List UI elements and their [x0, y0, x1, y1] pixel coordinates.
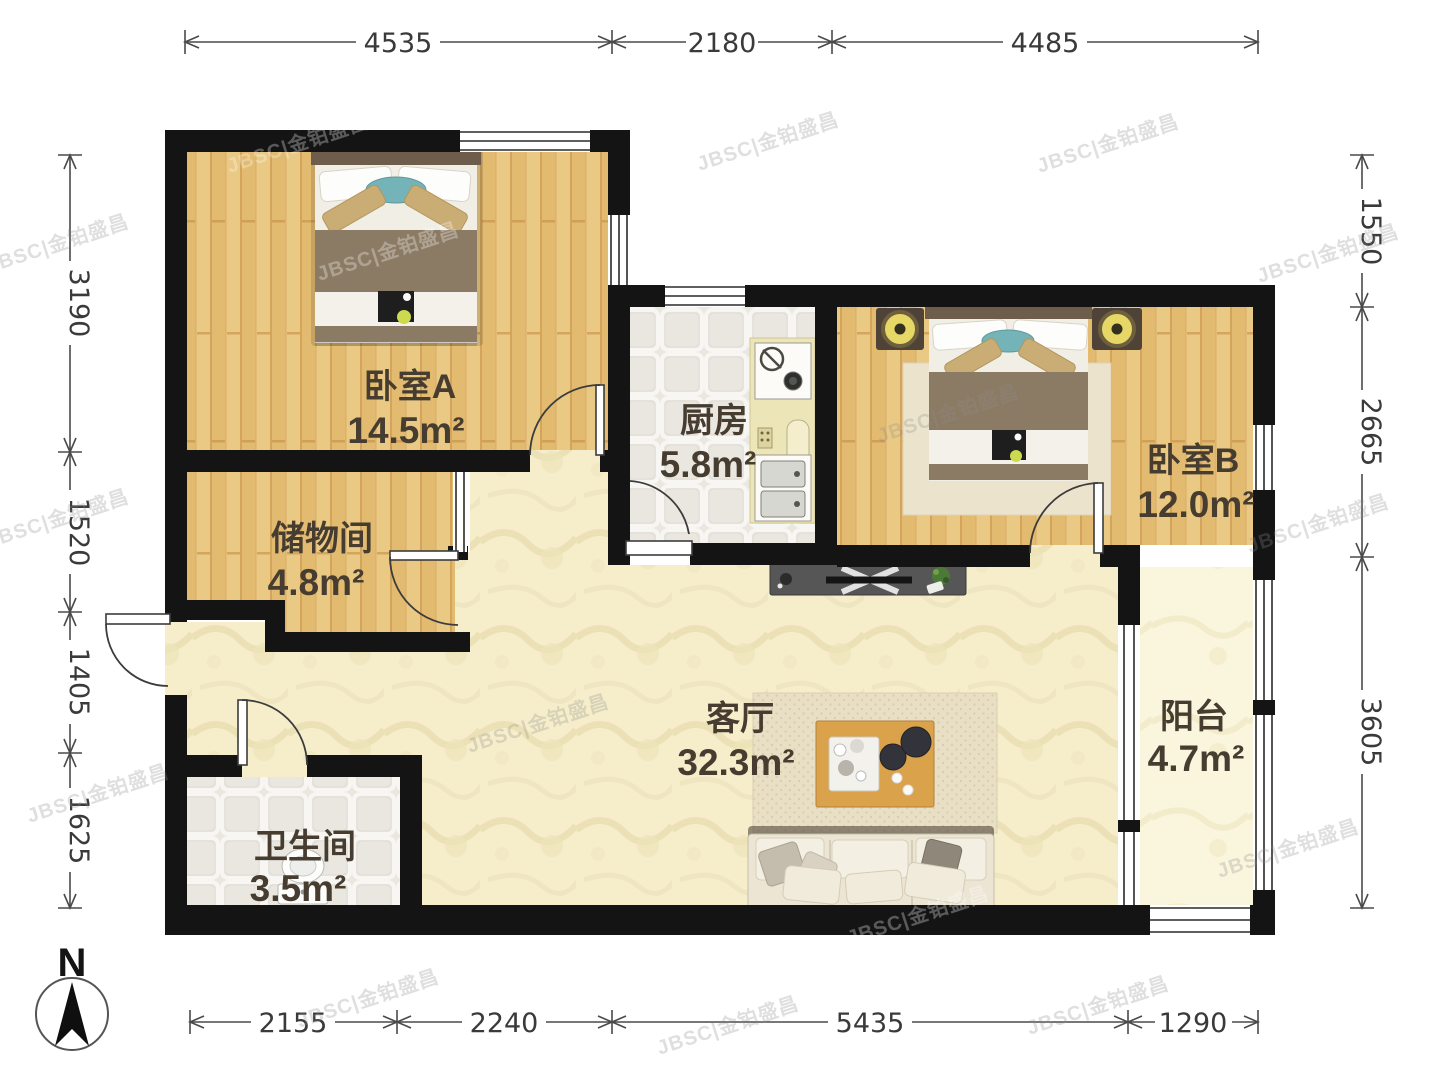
area-bedroom-b: 12.0m²	[1137, 484, 1254, 525]
floor-plan-svg: 4535 2180 4485 2155 2240 5435 1290	[0, 0, 1440, 1080]
label-kitchen: 厨房	[680, 402, 748, 440]
window-bedroom-a-right	[608, 215, 630, 285]
label-balcony: 阳台	[1160, 698, 1228, 736]
area-storage: 4.8m²	[268, 562, 365, 603]
window-bedroom-a-top	[460, 130, 590, 152]
dim-top-2: 2180	[688, 28, 757, 59]
kitchen-counter	[750, 338, 815, 523]
compass-north-arrow-icon	[55, 982, 89, 1046]
window-bedroom-b-right	[1253, 425, 1275, 490]
floor-plan-canvas: 4535 2180 4485 2155 2240 5435 1290	[0, 0, 1440, 1080]
compass: N	[36, 941, 108, 1050]
door-entry	[106, 614, 170, 686]
watermark: JBSC|金铂盛昌	[24, 759, 172, 828]
storage-glass-partition	[453, 472, 467, 552]
area-bedroom-a: 14.5m²	[347, 410, 464, 451]
dim-left-1: 3190	[63, 269, 94, 338]
dimension-top: 4535 2180 4485	[185, 28, 1258, 59]
dim-right-3: 3605	[1355, 698, 1386, 767]
dim-left-3: 1405	[63, 648, 94, 717]
dim-right-2: 2665	[1355, 398, 1386, 467]
window-kitchen-top	[665, 285, 745, 307]
dim-top-3: 4485	[1011, 28, 1080, 59]
label-storage: 储物间	[271, 520, 373, 558]
dim-bottom-2: 2240	[470, 1008, 539, 1039]
area-balcony: 4.7m²	[1148, 738, 1245, 779]
label-living: 客厅	[706, 699, 774, 738]
watermark: JBSC|金铂盛昌	[694, 107, 842, 176]
area-kitchen: 5.8m²	[660, 444, 757, 485]
label-bathroom: 卫生间	[254, 828, 356, 866]
balcony-sliding-window	[1118, 625, 1140, 905]
label-bedroom-b: 卧室B	[1147, 441, 1240, 480]
dim-bottom-4: 1290	[1159, 1008, 1228, 1039]
dim-bottom-3: 5435	[836, 1008, 905, 1039]
watermark: JBSC|金铂盛昌	[1024, 971, 1172, 1040]
dim-top-1: 4535	[364, 28, 433, 59]
area-bathroom: 3.5m²	[250, 868, 347, 909]
watermark: JBSC|金铂盛昌	[654, 991, 802, 1060]
watermark: JBSC|金铂盛昌	[0, 209, 132, 278]
window-balcony-right-upper	[1253, 580, 1275, 700]
window-balcony-bottom	[1150, 905, 1250, 935]
dimension-right: 1550 2665 3605	[1350, 155, 1386, 908]
area-living: 32.3m²	[677, 742, 794, 783]
tv-console	[770, 563, 966, 595]
watermark: JBSC|金铂盛昌	[1034, 109, 1182, 178]
label-bedroom-a: 卧室A	[364, 367, 457, 406]
